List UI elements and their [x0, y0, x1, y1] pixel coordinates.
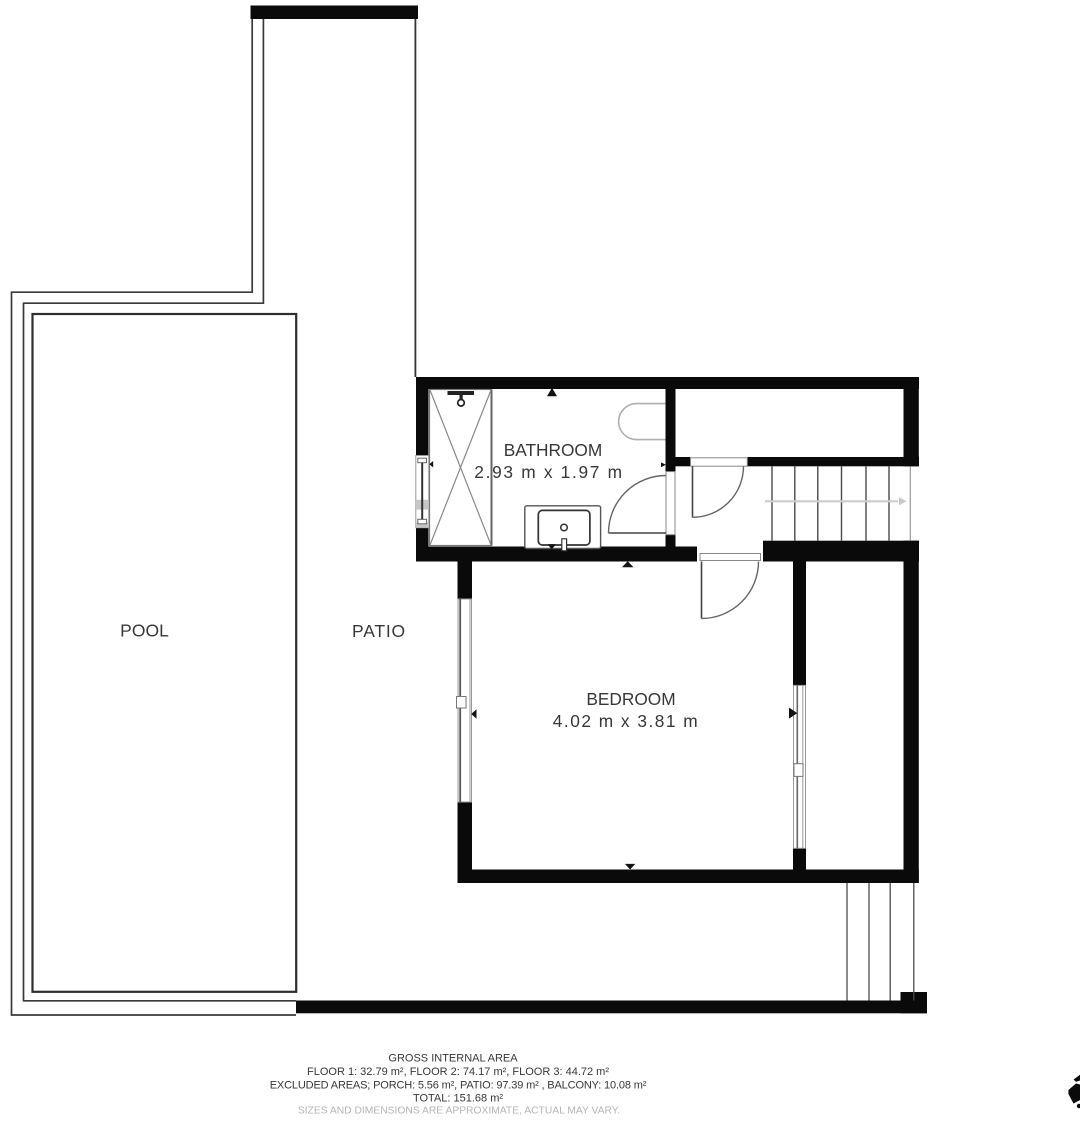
svg-text:BEDROOM: BEDROOM	[586, 689, 675, 709]
svg-text:SIZES AND DIMENSIONS ARE APPRO: SIZES AND DIMENSIONS ARE APPROXIMATE, AC…	[298, 1106, 620, 1117]
svg-text:PATIO: PATIO	[352, 621, 406, 641]
svg-text:POOL: POOL	[120, 621, 169, 641]
svg-text:2.93 m x 1.97 m: 2.93 m x 1.97 m	[474, 462, 623, 482]
svg-text:EXCLUDED AREAS; PORCH: 5.56 m²: EXCLUDED AREAS; PORCH: 5.56 m², PATIO: 9…	[270, 1080, 647, 1092]
svg-text:TOTAL: 151.68 m²: TOTAL: 151.68 m²	[413, 1092, 503, 1104]
svg-text:FLOOR 1: 32.79 m², FLOOR 2: 74: FLOOR 1: 32.79 m², FLOOR 2: 74.17 m², FL…	[307, 1066, 609, 1078]
svg-text:GROSS INTERNAL AREA: GROSS INTERNAL AREA	[388, 1053, 518, 1065]
svg-text:4.02 m x 3.81 m: 4.02 m x 3.81 m	[553, 711, 699, 731]
svg-text:BATHROOM: BATHROOM	[504, 440, 603, 460]
